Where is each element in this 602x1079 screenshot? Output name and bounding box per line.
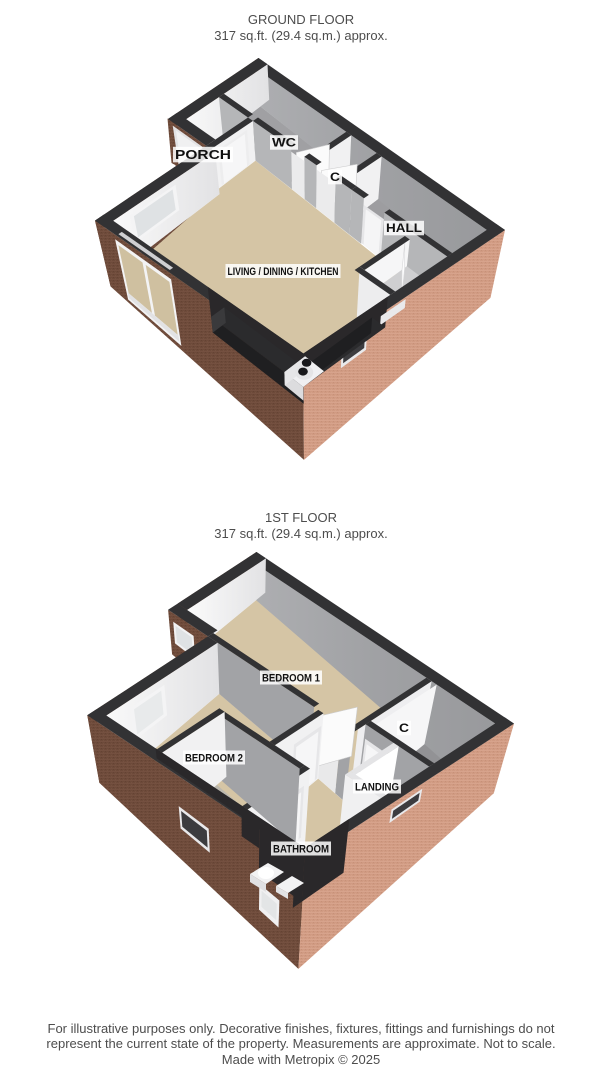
svg-text:LANDING: LANDING (355, 782, 399, 794)
svg-text:C: C (330, 172, 340, 184)
svg-text:LIVING / DINING / KITCHEN: LIVING / DINING / KITCHEN (228, 266, 339, 278)
svg-text:C: C (399, 723, 409, 735)
svg-text:BEDROOM 2: BEDROOM 2 (185, 753, 243, 765)
svg-text:WC: WC (272, 138, 296, 150)
svg-text:BEDROOM 1: BEDROOM 1 (262, 673, 320, 685)
svg-text:BATHROOM: BATHROOM (273, 844, 329, 856)
svg-text:HALL: HALL (386, 223, 422, 235)
svg-text:PORCH: PORCH (175, 148, 231, 162)
